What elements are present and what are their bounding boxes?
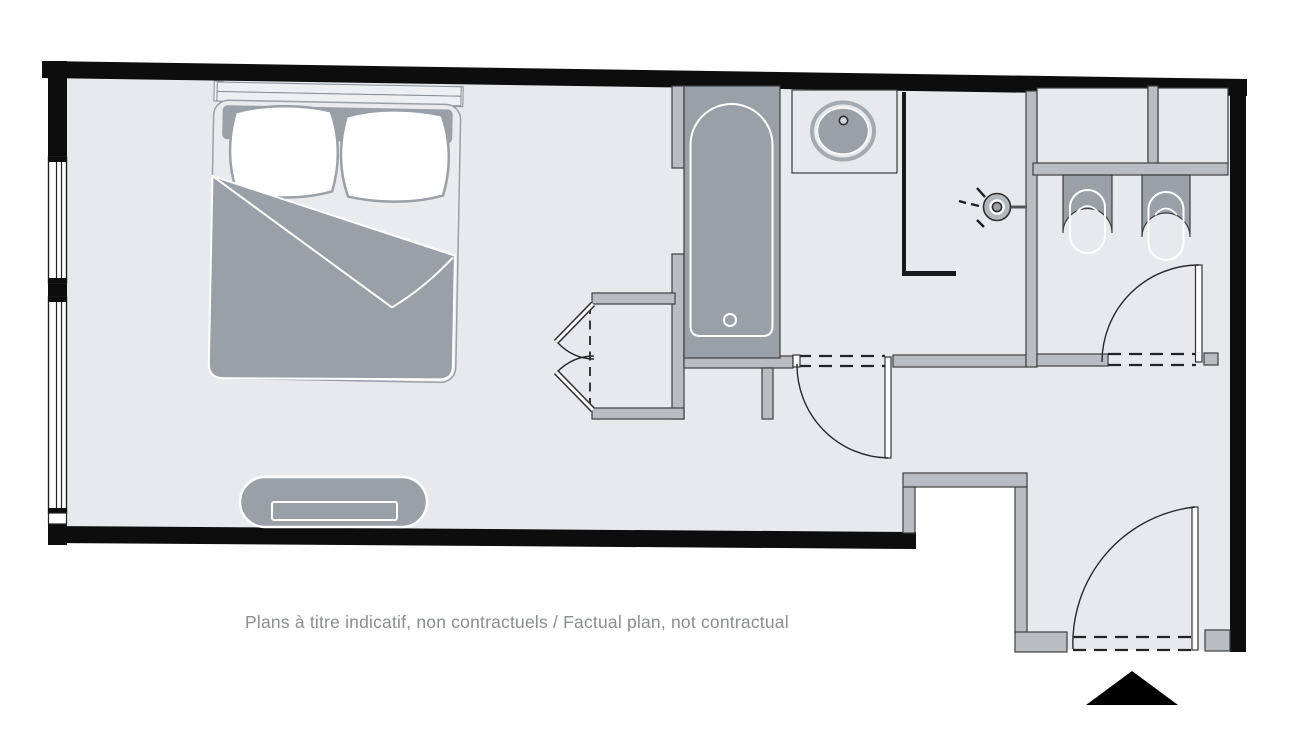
- pillow-left: [229, 105, 339, 198]
- entrance-triangle-icon: [1086, 671, 1178, 705]
- left-wall-top: [48, 61, 67, 157]
- pillow-right: [340, 109, 450, 202]
- wall-niche-bottom: [1033, 163, 1228, 175]
- floorplan-canvas: Plans à titre indicatif, non contractuel…: [0, 0, 1296, 732]
- wall-bath-stub: [762, 368, 773, 419]
- wall-entry-corridor: [1015, 487, 1027, 633]
- window-left-1: [48, 157, 67, 283]
- bathroom-door-leaf: [885, 357, 891, 458]
- bathtub: [684, 86, 780, 358]
- wall-tub-left-top: [672, 86, 684, 168]
- wall-wardrobe-right: [672, 254, 684, 419]
- wall-entry-north: [903, 473, 1027, 487]
- left-wall-mullion: [48, 283, 67, 297]
- wall-wc-south: [1037, 354, 1108, 366]
- wall-entry-block-left: [1015, 632, 1067, 652]
- washbasin: [812, 103, 874, 160]
- wall-niche-divider: [1148, 86, 1158, 164]
- caption: Plans à titre indicatif, non contractuel…: [245, 612, 789, 633]
- entry-door-leaf: [1192, 507, 1198, 650]
- wall-shower-south: [893, 355, 1026, 367]
- window-sill: [49, 513, 67, 524]
- wall-entry-west-stub: [903, 487, 915, 533]
- niche-right: [1158, 88, 1228, 164]
- wc-door-jamb-block: [1204, 353, 1218, 365]
- wall-entry-block-right: [1205, 630, 1230, 651]
- faucet-icon: [839, 116, 847, 124]
- wc-door-leaf: [1196, 265, 1203, 362]
- wall-wardrobe-top: [592, 293, 675, 304]
- wall-wardrobe-bottom: [592, 408, 684, 419]
- window-left-2: [48, 297, 67, 524]
- bench: [240, 477, 427, 527]
- wall-wc-west: [1026, 91, 1037, 367]
- right-wall: [1230, 79, 1246, 652]
- niche-left: [1037, 88, 1148, 164]
- double-bed: [209, 81, 464, 383]
